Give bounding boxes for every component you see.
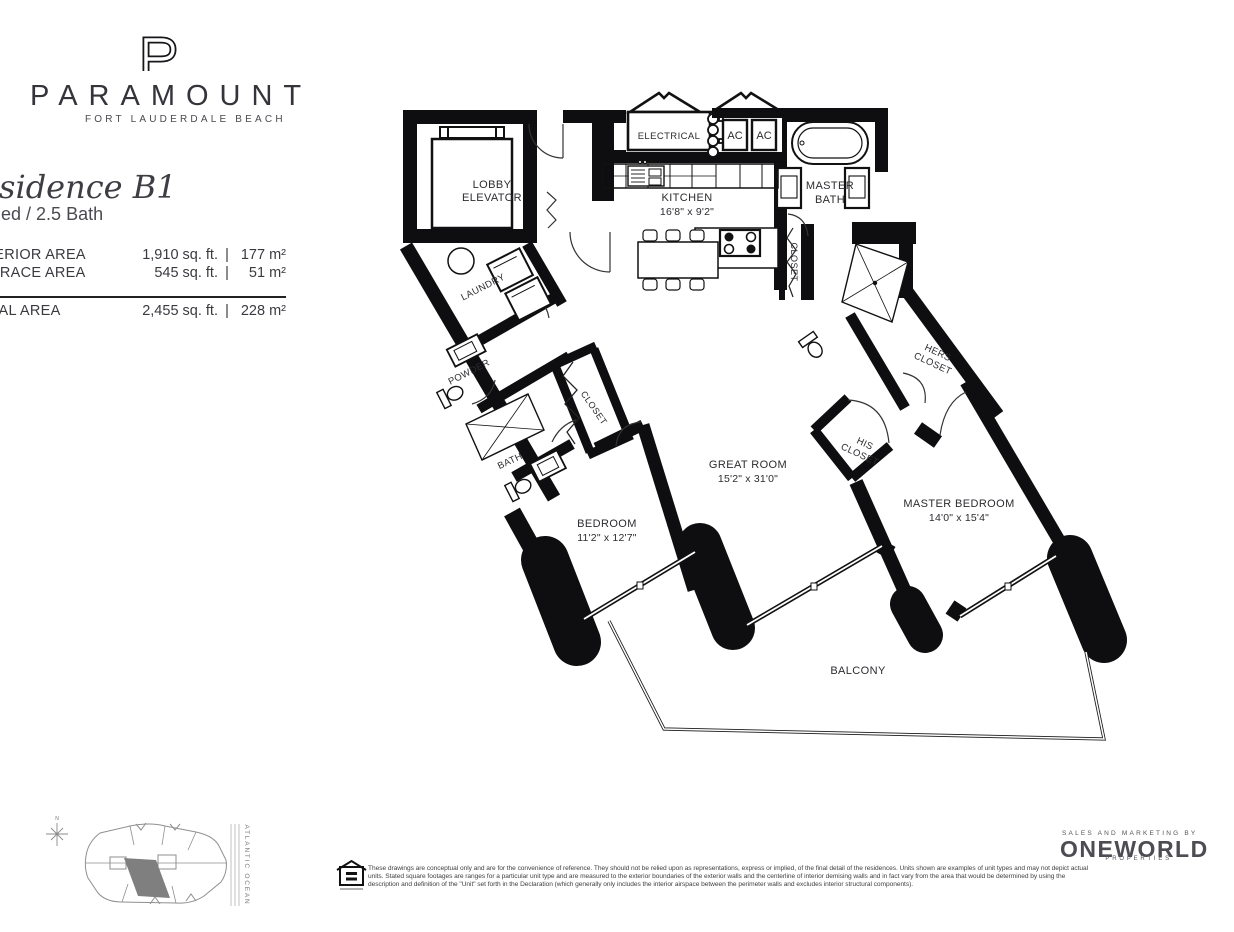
label-ac-right: AC — [756, 130, 771, 142]
label-master-bath: MASTER — [806, 180, 854, 192]
label-kitchen: KITCHEN — [661, 192, 712, 204]
label-balcony: BALCONY — [830, 665, 886, 677]
balcony-column — [545, 560, 577, 642]
toilet-icon — [799, 331, 828, 361]
floorplan-sheet: PARAMOUNT FORT LAUDERDALE BEACH Residenc… — [0, 0, 1234, 932]
svg-text:16'8" x 9'2": 16'8" x 9'2" — [660, 206, 714, 218]
balcony-column — [1070, 558, 1104, 640]
disclaimer-line-3: description and definition of the "Unit"… — [368, 881, 1183, 888]
compass-icon: N — [46, 816, 68, 846]
ocean-edge — [231, 824, 239, 906]
balcony-railing — [609, 621, 1104, 739]
disclaimer-line-2: units. Stated square footages are ranges… — [368, 873, 1183, 880]
disclaimer-line-1: These drawings are conceptual only and a… — [368, 865, 1183, 872]
compass-north: N — [55, 816, 59, 822]
elevator-core — [403, 110, 537, 243]
svg-text:15'2" x 31'0": 15'2" x 31'0" — [718, 473, 778, 485]
label-lobby-elevator: LOBBY — [473, 179, 512, 191]
cooktop-icon — [720, 230, 760, 256]
svg-text:11'2" x 12'7": 11'2" x 12'7" — [577, 532, 636, 544]
svg-text:14'0" x 15'4": 14'0" x 15'4" — [929, 512, 989, 524]
ac-closets — [712, 108, 782, 150]
label-ac-left: AC — [727, 130, 742, 142]
svg-text:BATH: BATH — [815, 194, 845, 206]
ocean-label: ATLANTIC OCEAN — [243, 824, 250, 905]
label-master-closet: CLOSET — [789, 242, 799, 281]
equal-housing-icon — [337, 861, 366, 889]
svg-text:ELEVATOR: ELEVATOR — [462, 192, 522, 204]
label-bedroom-closet: CLOSET — [579, 389, 610, 427]
window-wall — [584, 546, 1056, 625]
bathtub-icon — [792, 122, 868, 164]
laundry-sink-icon — [448, 248, 474, 274]
label-great-room: GREAT ROOM — [709, 459, 787, 471]
master-shower-icon — [842, 244, 908, 322]
bifold-door-icon — [547, 192, 556, 228]
label-electrical: ELECTRICAL — [638, 131, 701, 142]
label-bedroom: BEDROOM — [577, 518, 637, 530]
unit-highlight — [124, 858, 170, 898]
marketing-sub: PROPERTIES — [1060, 856, 1172, 862]
balcony-column — [700, 545, 733, 628]
site-key-map — [85, 823, 227, 904]
label-master-bedroom: MASTER BEDROOM — [903, 498, 1014, 510]
brand-monogram-icon — [146, 40, 173, 71]
floorplan-drawing: LOBBY ELEVATOR ELECTRICAL AC AC KITCHEN … — [0, 0, 1234, 932]
